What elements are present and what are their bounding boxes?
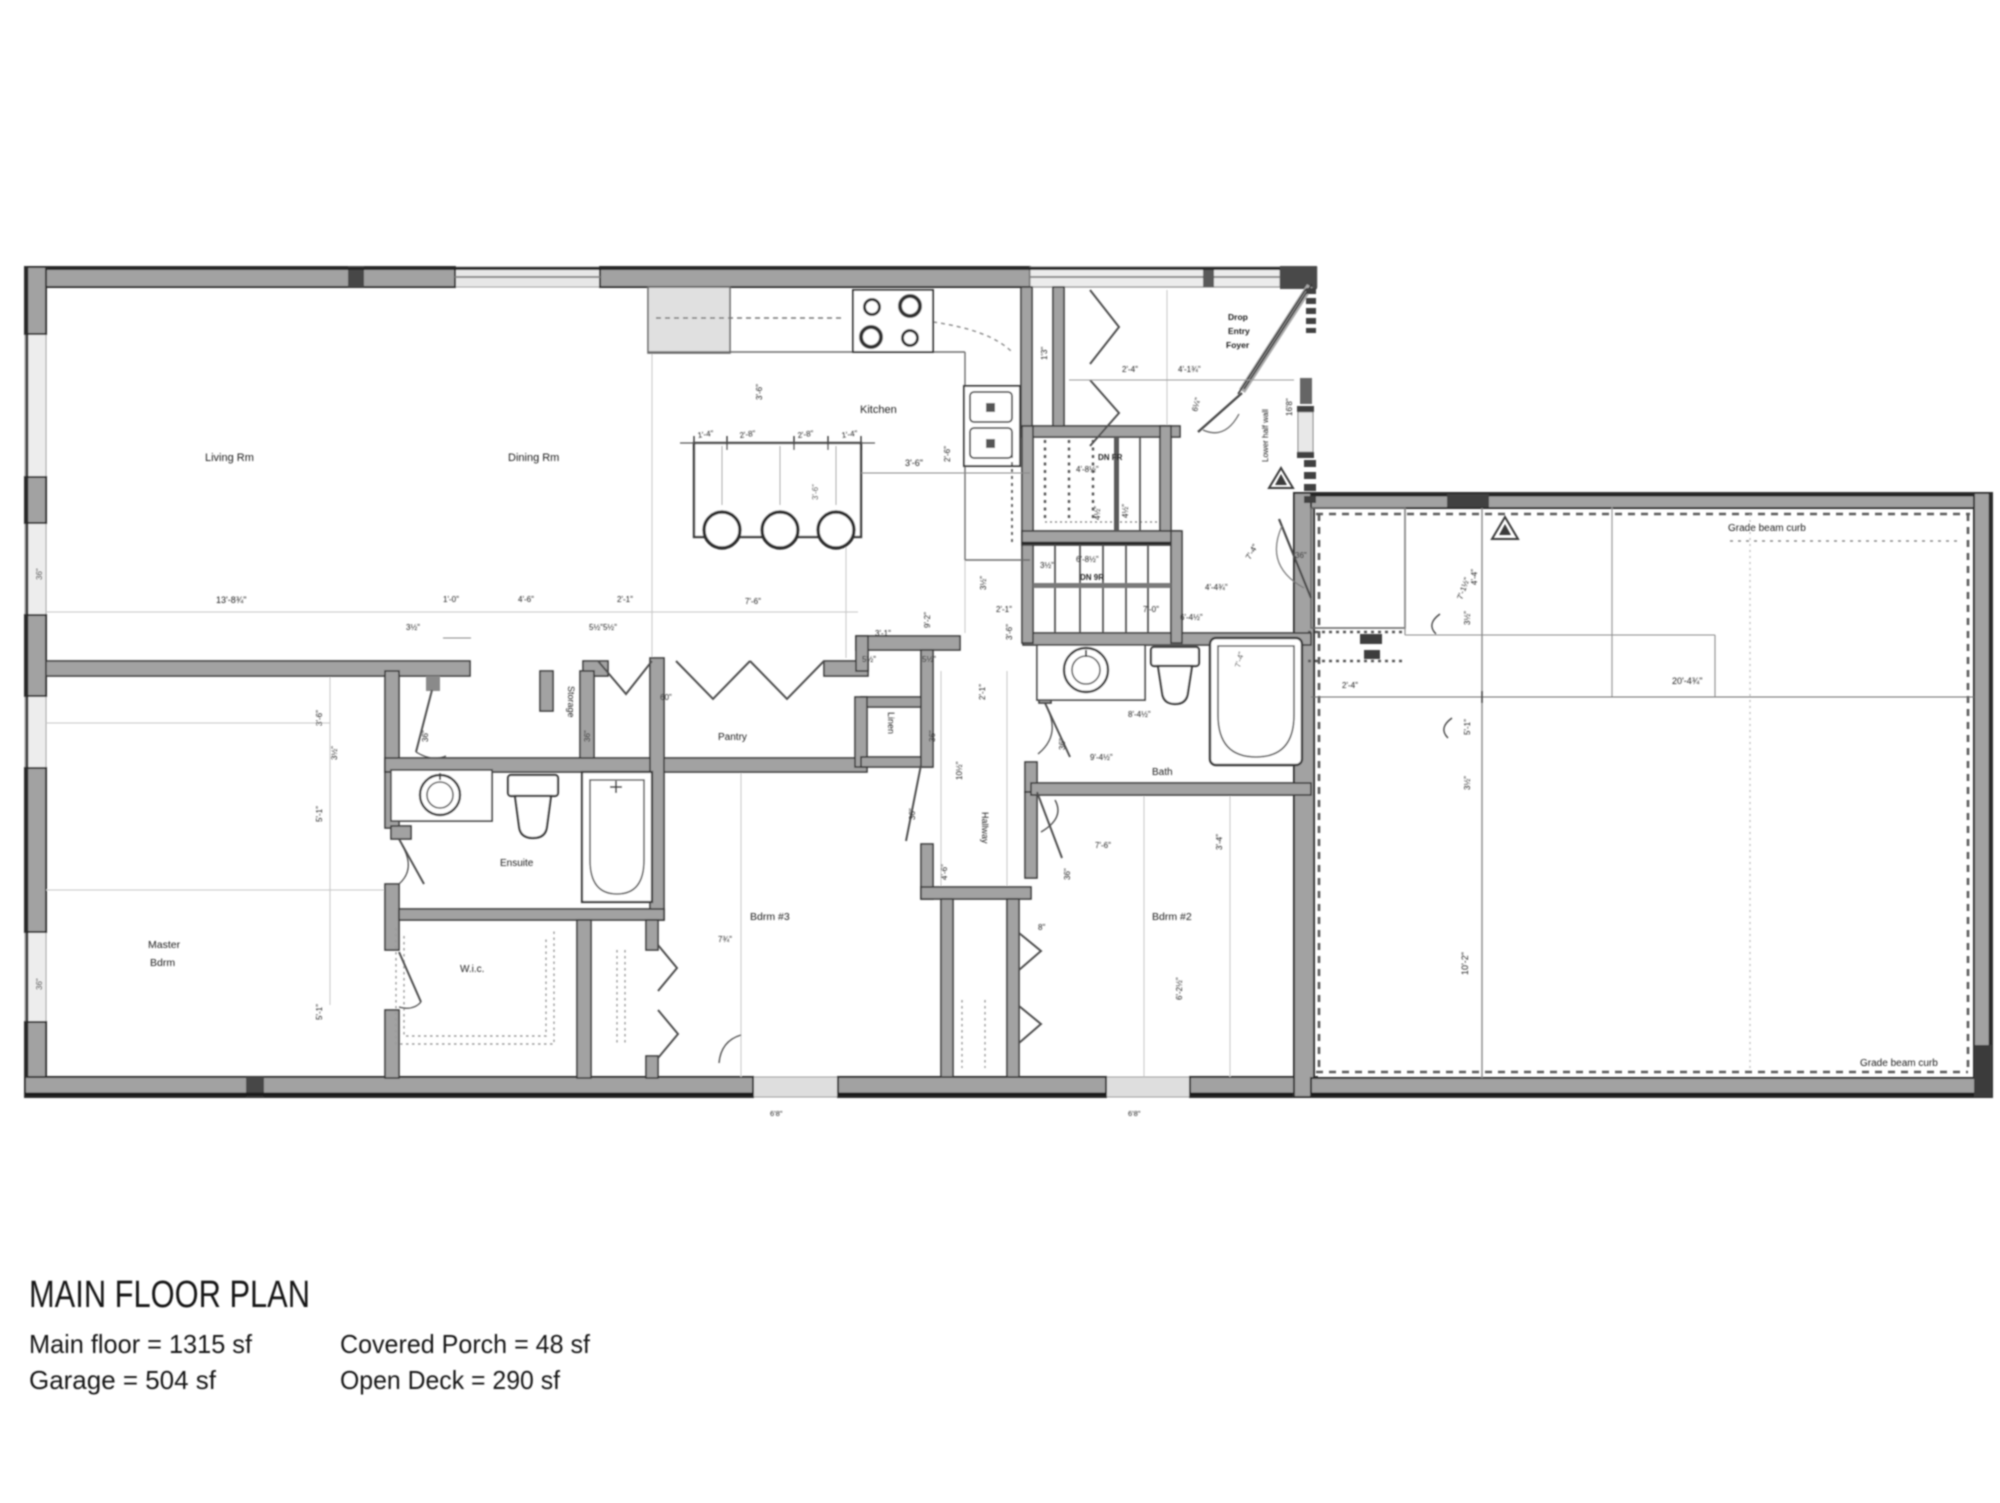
svg-text:Covered Porch = 48 sf: Covered Porch = 48 sf [340, 1329, 591, 1359]
svg-text:36": 36" [1063, 868, 1072, 880]
svg-text:10'-2": 10'-2" [1460, 952, 1470, 975]
svg-text:36": 36" [1058, 738, 1067, 750]
svg-text:MAIN FLOOR PLAN: MAIN FLOOR PLAN [29, 1274, 310, 1316]
svg-text:5½": 5½" [922, 655, 936, 664]
svg-text:Hallway: Hallway [980, 812, 990, 844]
svg-text:36": 36" [421, 730, 430, 742]
svg-text:3'-6": 3'-6" [315, 710, 324, 726]
svg-text:Master: Master [148, 939, 181, 951]
svg-text:60": 60" [660, 693, 672, 702]
svg-text:1'3": 1'3" [1040, 347, 1049, 360]
svg-text:Entry: Entry [1228, 326, 1250, 336]
svg-text:6'-8½": 6'-8½" [1076, 555, 1099, 564]
svg-text:8'-4½": 8'-4½" [1128, 710, 1151, 719]
svg-text:9'-2": 9'-2" [923, 612, 932, 628]
svg-text:4½": 4½" [1121, 504, 1130, 518]
svg-text:Linen: Linen [886, 712, 896, 734]
svg-text:10½": 10½" [955, 761, 964, 780]
svg-text:3½": 3½" [979, 576, 988, 590]
svg-text:2'-4": 2'-4" [1342, 681, 1358, 690]
svg-text:Bath: Bath [1152, 767, 1173, 778]
svg-text:7¾": 7¾" [718, 935, 732, 944]
svg-text:2'-4": 2'-4" [1122, 365, 1138, 374]
svg-text:Open Deck = 290 sf: Open Deck = 290 sf [340, 1365, 561, 1395]
svg-text:5'-1": 5'-1" [1463, 719, 1472, 735]
svg-text:36": 36" [583, 730, 592, 742]
svg-text:3'-6": 3'-6" [811, 484, 820, 500]
svg-text:Kitchen: Kitchen [860, 404, 897, 416]
svg-text:Bdrm #3: Bdrm #3 [750, 911, 790, 923]
svg-text:Bdrm: Bdrm [150, 957, 175, 969]
svg-text:Garage = 504 sf: Garage = 504 sf [29, 1365, 217, 1395]
svg-text:36": 36" [908, 808, 917, 820]
svg-text:3½": 3½" [330, 746, 339, 760]
svg-text:3'-6": 3'-6" [755, 384, 764, 400]
svg-text:3'-6": 3'-6" [905, 458, 923, 468]
svg-text:Grade beam curb: Grade beam curb [1728, 523, 1806, 534]
svg-text:20'-4¾": 20'-4¾" [1672, 676, 1702, 686]
svg-text:36": 36" [928, 730, 937, 742]
svg-text:Lower half wall: Lower half wall [1261, 409, 1270, 462]
svg-text:Dining Rm: Dining Rm [508, 452, 559, 464]
svg-text:5'-1": 5'-1" [315, 806, 324, 822]
svg-text:1'-0": 1'-0" [443, 595, 459, 604]
svg-text:3'-6": 3'-6" [1005, 624, 1014, 640]
svg-text:3½": 3½" [406, 623, 420, 632]
svg-text:3½": 3½" [1463, 611, 1472, 625]
svg-text:4'-1¾": 4'-1¾" [1178, 365, 1201, 374]
svg-text:4'-6": 4'-6" [940, 864, 949, 880]
svg-text:Drop: Drop [1228, 312, 1248, 322]
svg-text:2'-1": 2'-1" [996, 605, 1012, 614]
svg-text:Main floor = 1315 sf: Main floor = 1315 sf [29, 1329, 253, 1359]
svg-text:3'-1": 3'-1" [875, 629, 891, 638]
svg-text:4½": 4½" [1093, 506, 1102, 520]
svg-text:DN FR: DN FR [1098, 453, 1123, 462]
svg-text:36": 36" [35, 568, 44, 580]
svg-text:6'8": 6'8" [1128, 1109, 1141, 1118]
svg-text:6'8": 6'8" [770, 1109, 783, 1118]
svg-text:3½": 3½" [1040, 561, 1054, 570]
svg-text:6'-4½": 6'-4½" [1180, 613, 1203, 622]
svg-text:4'-8½": 4'-8½" [1076, 465, 1099, 474]
svg-text:4'-6": 4'-6" [518, 595, 534, 604]
svg-text:2'-1": 2'-1" [617, 595, 633, 604]
svg-text:16'8": 16'8" [1285, 398, 1294, 416]
svg-text:5½": 5½" [862, 655, 876, 664]
svg-text:7'-0": 7'-0" [1143, 605, 1159, 614]
svg-text:13'-8¾": 13'-8¾" [216, 595, 246, 605]
svg-text:Living Rm: Living Rm [205, 452, 254, 464]
svg-text:DN 9R: DN 9R [1080, 573, 1104, 582]
svg-text:36": 36" [1295, 551, 1307, 560]
svg-text:6'-2½": 6'-2½" [1175, 977, 1184, 1000]
svg-text:Ensuite: Ensuite [500, 858, 534, 869]
svg-text:7'-6": 7'-6" [745, 597, 761, 606]
svg-text:8": 8" [1038, 923, 1045, 932]
svg-text:4'-4": 4'-4" [1470, 569, 1479, 585]
svg-text:36": 36" [35, 978, 44, 990]
svg-text:Bdrm #2: Bdrm #2 [1152, 911, 1192, 923]
svg-text:Storage: Storage [566, 686, 576, 718]
svg-text:7'-6": 7'-6" [1095, 841, 1111, 850]
svg-text:3½": 3½" [1463, 776, 1472, 790]
svg-text:2'-6": 2'-6" [943, 446, 952, 462]
svg-text:5'-1": 5'-1" [315, 1004, 324, 1020]
svg-text:Grade beam curb: Grade beam curb [1860, 1058, 1938, 1069]
svg-text:4'-4¾": 4'-4¾" [1205, 583, 1228, 592]
svg-text:5½"5½": 5½"5½" [589, 623, 617, 632]
svg-text:3'-4": 3'-4" [1215, 834, 1224, 850]
svg-text:W.i.c.: W.i.c. [460, 964, 484, 975]
svg-text:9'-4½": 9'-4½" [1090, 753, 1113, 762]
svg-text:Foyer: Foyer [1226, 340, 1250, 350]
svg-text:Pantry: Pantry [718, 732, 747, 743]
svg-text:2'-1": 2'-1" [978, 684, 987, 700]
